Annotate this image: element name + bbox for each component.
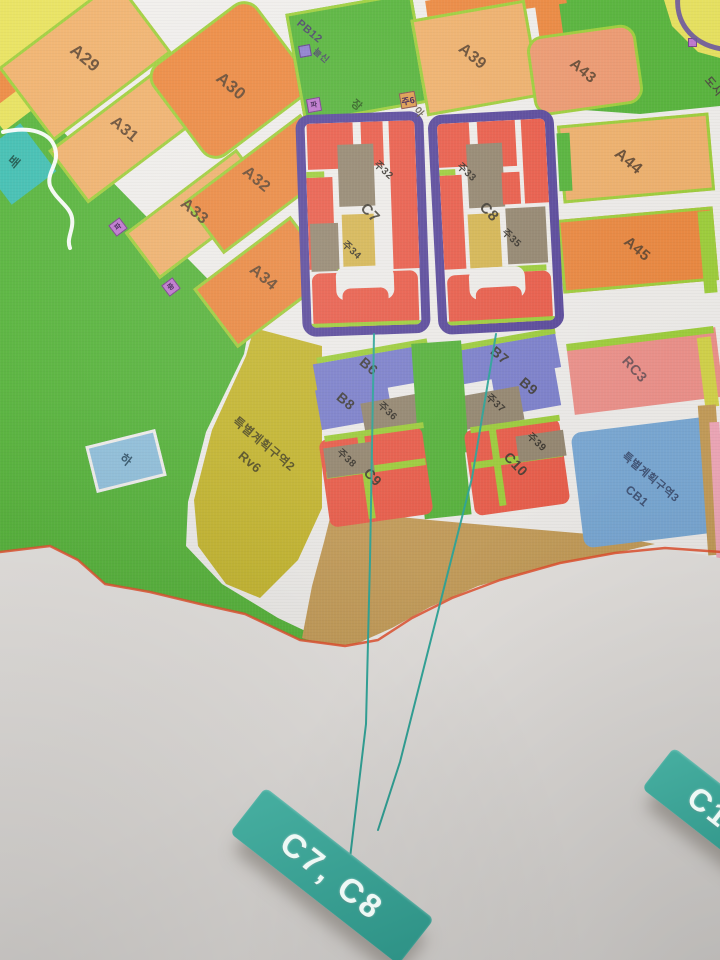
block-subparcel [306, 171, 324, 178]
tag-c12: C12 [642, 747, 720, 880]
facility-icon-ne [688, 38, 697, 47]
block-subparcel [310, 223, 340, 272]
photographed-zoning-map: A29A30A31A32A33A34A39A43A44A45PB12늘신장아도시… [0, 0, 720, 960]
tag-c12-text: C12 [680, 780, 720, 849]
block-subparcel [440, 175, 467, 270]
block-subparcel [501, 172, 521, 205]
block-c8 [427, 109, 564, 335]
block-subparcel [337, 144, 375, 207]
block-subparcel [388, 120, 419, 269]
map-canvas: A29A30A31A32A33A34A39A43A44A45PB12늘신장아도시… [0, 0, 720, 960]
block-subparcel [439, 169, 455, 176]
tag-c7-c8-text: C7, C8 [273, 824, 392, 928]
block-subparcel [521, 118, 549, 203]
green-strip-c8-east [556, 133, 572, 192]
block-subparcel [468, 213, 503, 269]
tag-c7-c8: C7, C8 [230, 787, 434, 960]
facility-icon-pa-2: 파 [306, 97, 322, 113]
facility-icon-pb12 [298, 44, 312, 58]
block-c7 [295, 111, 431, 337]
facility-icon-ju6: 주6 [399, 91, 418, 110]
